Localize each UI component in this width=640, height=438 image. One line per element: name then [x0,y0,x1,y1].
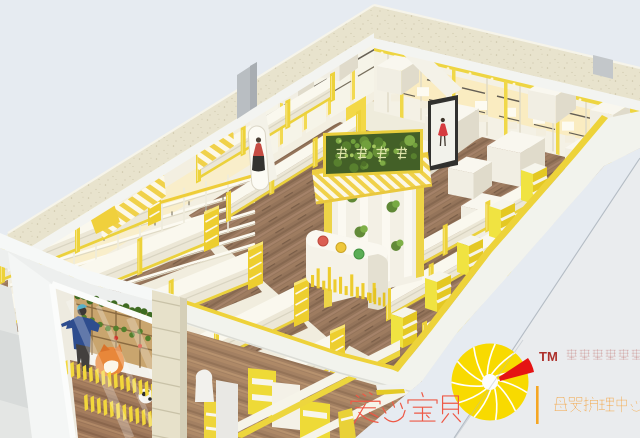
svg-text:TM: TM [539,349,558,364]
